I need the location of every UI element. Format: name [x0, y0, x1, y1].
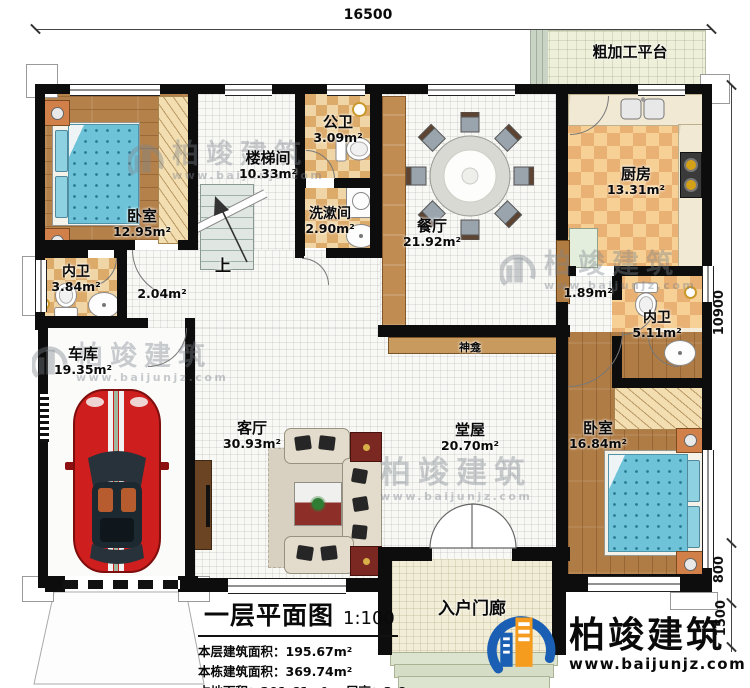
room-name: 洗漱间	[305, 206, 354, 222]
room-name: 堂屋	[441, 422, 499, 439]
brand-url: www.baijunjz.com	[569, 655, 746, 673]
room-area: 3.84m²	[51, 280, 100, 294]
room-area: 5.11m²	[632, 326, 681, 340]
garage-door	[63, 580, 180, 589]
garage-vent	[40, 394, 49, 442]
platform-edge	[530, 30, 548, 86]
wall	[370, 94, 382, 256]
title-block: 一层平面图 1:100 本层建筑面积：195.67m² 本栋建筑面积：369.7…	[198, 594, 398, 688]
room-label-bath-right: 内卫 5.11m²	[632, 310, 681, 340]
room-name: 公卫	[313, 114, 362, 131]
floor-plan-canvas: 柏竣建筑www.baijunjz.com 柏竣建筑www.baijunjz.co…	[0, 0, 750, 688]
window	[588, 576, 680, 592]
nightstand	[676, 428, 704, 453]
plan-title: 一层平面图	[204, 596, 334, 632]
dimension-line-top	[35, 29, 712, 30]
room-area: 2.90m²	[305, 222, 354, 236]
burner	[684, 158, 698, 172]
room-label-washroom: 洗漱间 2.90m²	[305, 206, 354, 236]
window	[702, 450, 714, 568]
room-name: 厨房	[607, 166, 665, 183]
wall	[612, 378, 712, 388]
room-name: 卧室	[113, 208, 171, 225]
room-area: 3.09m²	[313, 131, 362, 145]
room-label-dining: 餐厅 21.92m²	[403, 218, 461, 250]
room-area: 16.84m²	[569, 437, 627, 451]
bath-left-sink	[88, 292, 120, 318]
nightstand	[44, 100, 70, 126]
wall	[45, 318, 148, 328]
tv	[206, 485, 210, 527]
room-area: 12.95m²	[113, 225, 171, 239]
stat-land-area: 占地面积：201.61m² 层高：3.6m	[198, 682, 398, 688]
towel-ring	[684, 286, 697, 299]
wall	[556, 325, 568, 592]
stairs-up-label: 上	[215, 257, 231, 275]
wall	[35, 250, 88, 258]
room-name: 客厅	[223, 420, 281, 437]
fridge	[569, 228, 598, 268]
room-area: 19.35m²	[54, 363, 112, 377]
entrance-double-door	[428, 500, 518, 550]
wall	[295, 248, 304, 258]
burner	[684, 178, 698, 192]
room-area: 2.04m²	[137, 287, 186, 301]
plan-scale: 1:100	[343, 608, 395, 629]
room-name: 车库	[54, 346, 112, 363]
wall	[614, 266, 712, 276]
window	[70, 84, 160, 96]
room-name: 粗加工平台	[592, 44, 667, 61]
room-area: 30.93m²	[223, 437, 281, 451]
room-area: 13.31m²	[607, 183, 665, 197]
wall	[612, 276, 622, 300]
window	[35, 260, 47, 312]
wall	[45, 576, 65, 592]
room-area: 10.33m²	[239, 167, 297, 181]
dimension-label-side-lower: 800	[712, 556, 727, 583]
room-label-main-hall: 堂屋 20.70m²	[441, 422, 499, 454]
bed-blanket	[608, 454, 688, 552]
room-name: 楼梯间	[239, 150, 297, 167]
wall	[556, 94, 568, 240]
room-label-bedroom2: 卧室 16.84m²	[569, 420, 627, 452]
brand-logo-icon	[487, 606, 561, 684]
window	[225, 84, 272, 96]
pillow	[687, 506, 700, 548]
wall	[185, 318, 195, 590]
dimension-label-top: 16500	[344, 5, 393, 23]
shrine-label: 神龛	[459, 337, 481, 355]
room-name: 内卫	[51, 264, 100, 280]
stat-floor-area: 本层建筑面积：195.67m²	[198, 642, 398, 662]
wardrobe	[614, 386, 704, 430]
wall	[38, 322, 48, 588]
pillow	[55, 130, 68, 172]
title-rule	[198, 635, 398, 637]
wall	[178, 240, 195, 250]
room-name: 内卫	[632, 310, 681, 326]
room-label-garage: 车库 19.35m²	[54, 346, 112, 378]
driveway-outline	[24, 588, 216, 688]
brand-block: 柏竣建筑 www.baijunjz.com	[487, 606, 746, 684]
kitchen-sink	[620, 97, 666, 121]
dimension-line-right	[731, 86, 732, 652]
room-area: 1.89m²	[563, 286, 612, 300]
car	[62, 386, 172, 576]
pillow	[55, 176, 68, 218]
wall	[300, 178, 306, 188]
room-area: 21.92m²	[403, 235, 461, 249]
window	[228, 578, 346, 594]
side-table	[350, 432, 382, 462]
room-name: 餐厅	[403, 218, 461, 235]
stat-total-area: 本栋建筑面积：369.74m²	[198, 662, 398, 682]
window	[428, 84, 515, 96]
room-label-stairwell: 楼梯间 10.33m²	[239, 150, 297, 182]
wall	[188, 94, 198, 250]
wall	[326, 248, 382, 258]
wall	[556, 302, 568, 325]
window	[327, 84, 365, 96]
window	[638, 84, 685, 96]
room-label-kitchen: 厨房 13.31m²	[607, 166, 665, 198]
brand-name: 柏竣建筑	[569, 617, 746, 655]
room-label-bedroom1: 卧室 12.95m²	[113, 208, 171, 240]
area-label-corridor: 1.89m²	[563, 286, 612, 300]
coffee-table	[294, 482, 342, 526]
dimension-label-side: 10900	[712, 290, 727, 335]
wall	[378, 325, 570, 337]
wall	[117, 250, 127, 326]
wall	[568, 266, 576, 276]
room-label-living: 客厅 30.93m²	[223, 420, 281, 452]
wall	[45, 240, 135, 250]
area-label-hall: 2.04m²	[137, 287, 186, 301]
room-label-public-bath: 公卫 3.09m²	[313, 114, 362, 146]
washing-machine-door	[352, 192, 370, 210]
sofa-top	[284, 428, 350, 464]
room-label-platform: 粗加工平台	[592, 44, 667, 61]
sofa-bottom	[284, 536, 354, 574]
room-name: 卧室	[569, 420, 627, 437]
plant	[312, 498, 324, 510]
room-label-bath-left: 内卫 3.84m²	[51, 264, 100, 294]
sideboard	[382, 96, 406, 327]
room-area: 20.70m²	[441, 439, 499, 453]
pillow	[687, 460, 700, 502]
stove	[680, 152, 702, 198]
windshield	[88, 451, 146, 486]
